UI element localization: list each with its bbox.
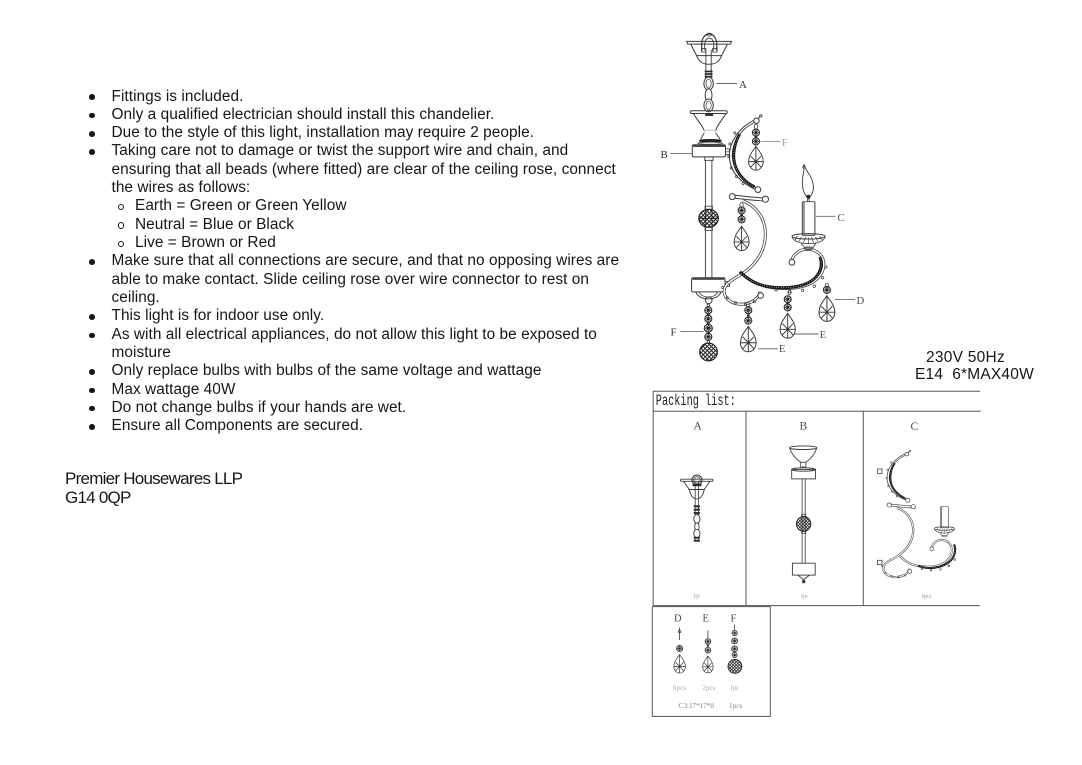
svg-text:1pc: 1pc bbox=[730, 685, 739, 692]
svg-text:1pc: 1pc bbox=[800, 593, 808, 600]
svg-text:1pc: 1pc bbox=[693, 592, 701, 599]
svg-text:1pcs: 1pcs bbox=[729, 701, 743, 710]
svg-text:6pcs: 6pcs bbox=[922, 593, 932, 600]
svg-text:C: C bbox=[911, 421, 919, 433]
svg-text:B: B bbox=[661, 149, 668, 161]
svg-text:D: D bbox=[857, 295, 865, 307]
svg-text:2pcs: 2pcs bbox=[702, 685, 715, 692]
svg-text:E: E bbox=[820, 329, 827, 341]
svg-text:Packing list:: Packing list: bbox=[656, 392, 736, 410]
svg-text:C3:17*17*8: C3:17*17*8 bbox=[679, 701, 715, 710]
svg-text:C: C bbox=[838, 212, 845, 224]
svg-text:F: F bbox=[782, 138, 788, 149]
svg-text:E: E bbox=[703, 614, 709, 625]
svg-text:F: F bbox=[671, 327, 677, 339]
svg-text:F: F bbox=[731, 614, 737, 625]
svg-text:E: E bbox=[779, 343, 786, 355]
svg-text:A: A bbox=[739, 79, 747, 91]
svg-text:B: B bbox=[800, 421, 808, 433]
svg-text:A: A bbox=[694, 421, 703, 433]
svg-text:D: D bbox=[674, 614, 682, 625]
svg-text:6pcs: 6pcs bbox=[673, 685, 686, 692]
